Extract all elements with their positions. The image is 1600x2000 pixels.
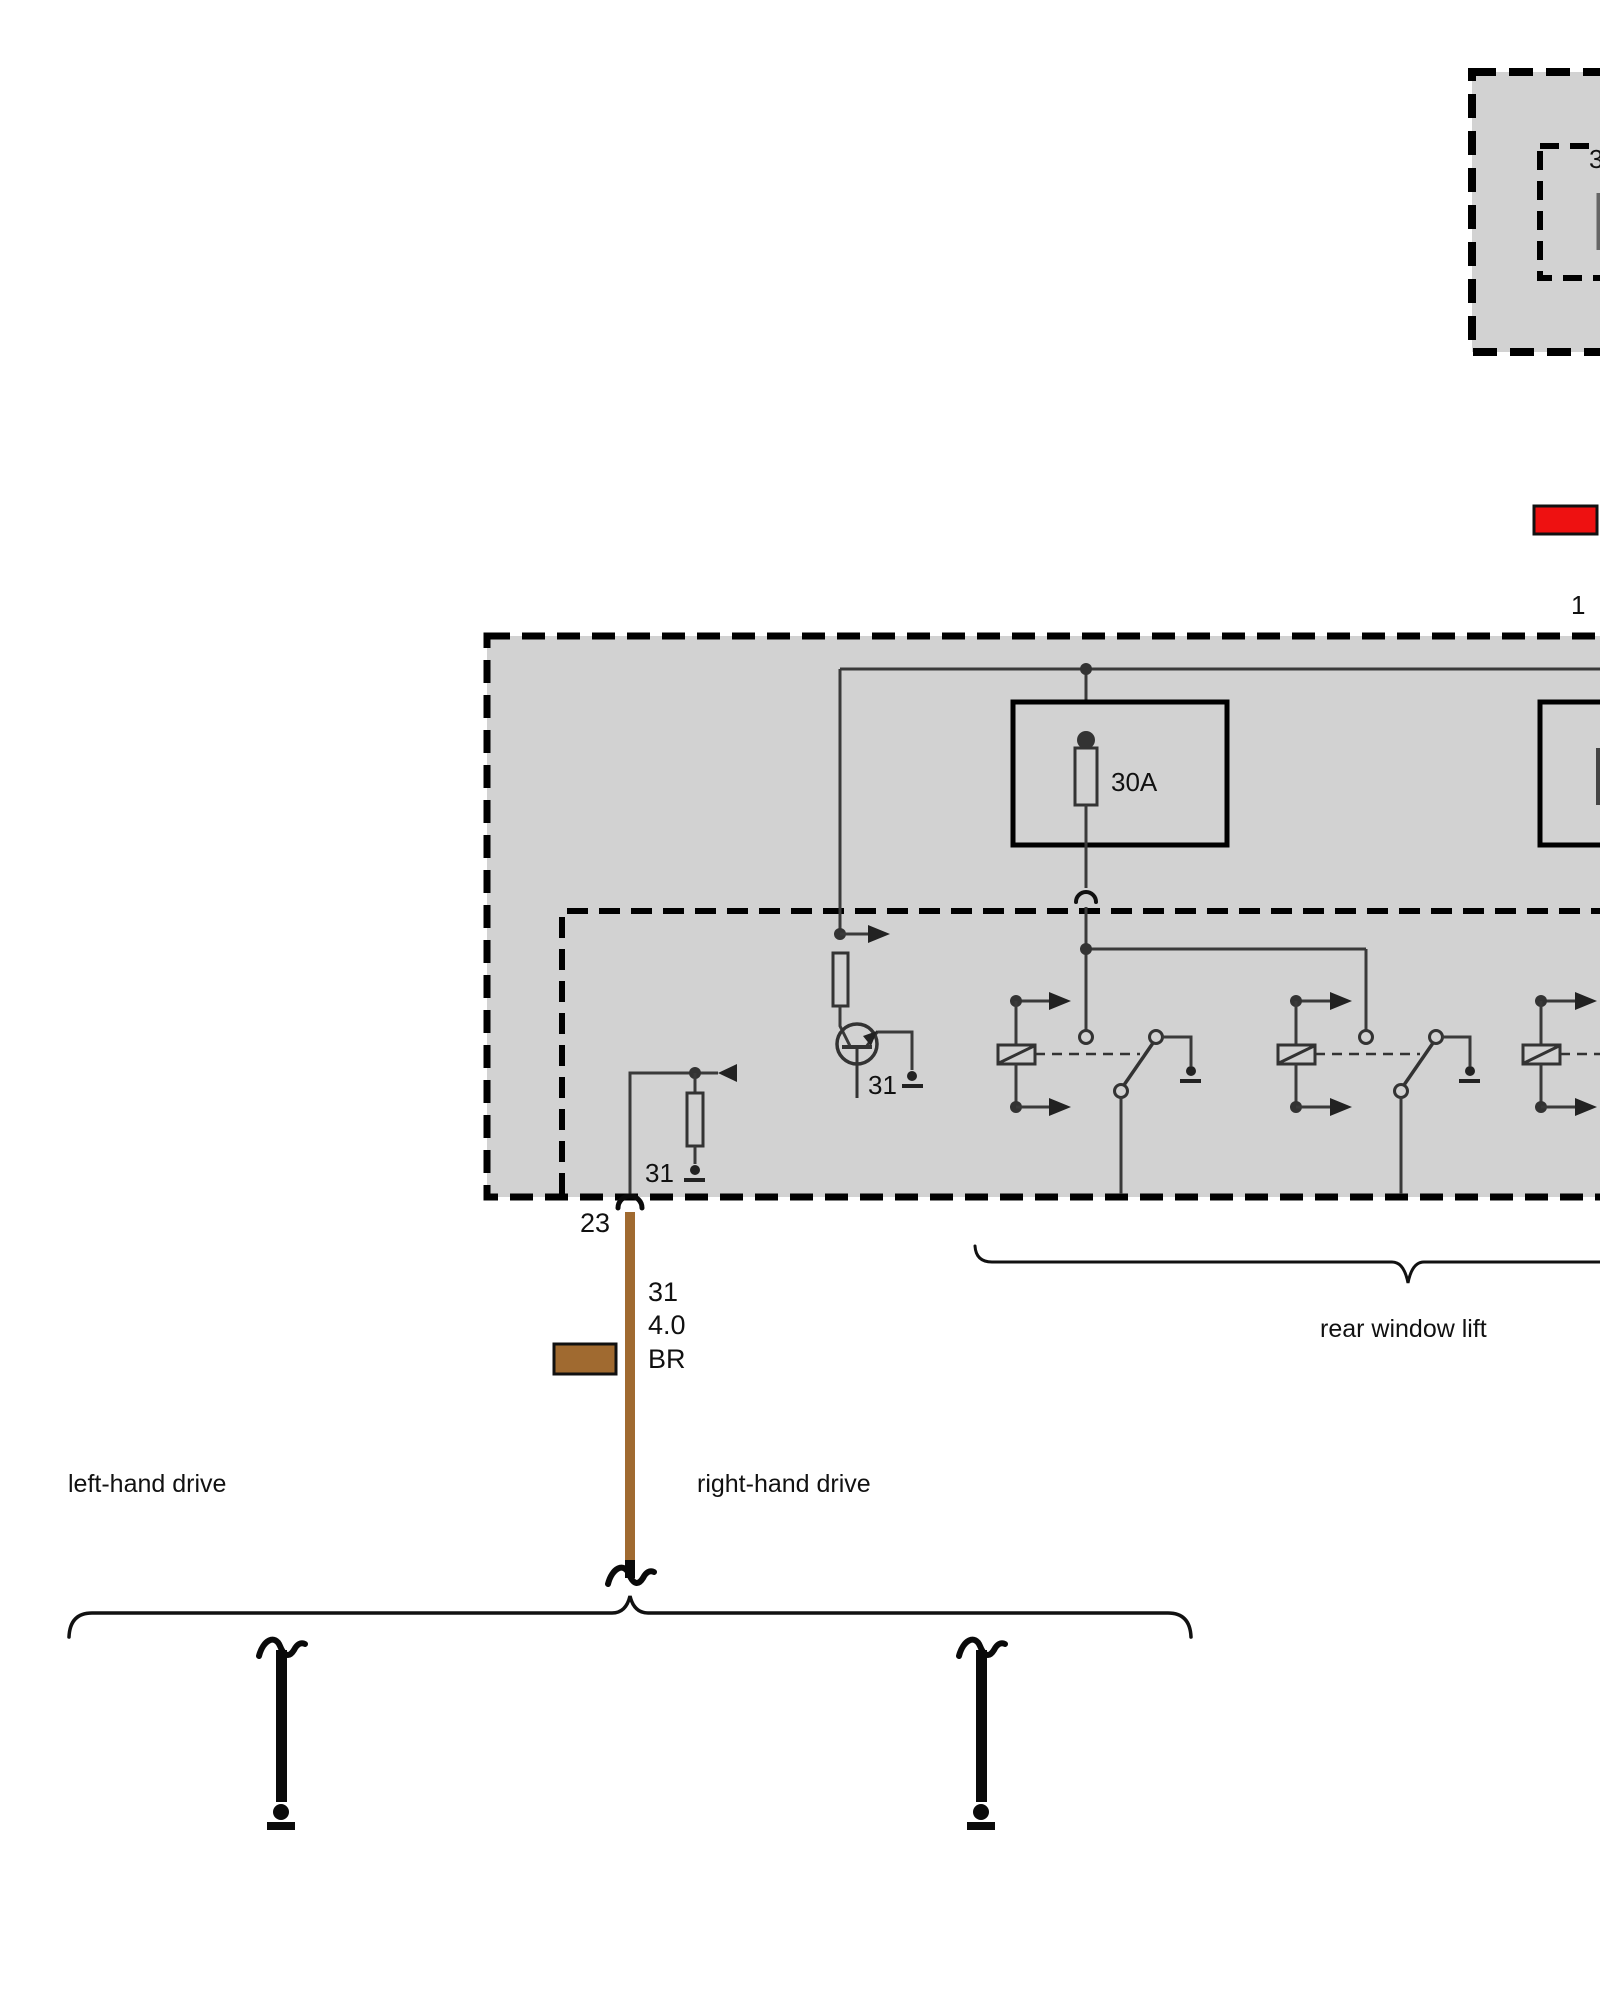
caption-right-hand-drive: right-hand drive (697, 1470, 871, 1498)
brace-bottom (69, 1596, 1191, 1637)
resistor-icon (687, 1093, 703, 1146)
ground-wire (976, 1650, 987, 1802)
ground-wire-right (959, 1640, 1005, 1830)
ground-icon (967, 1804, 995, 1830)
pin-23-label: 23 (580, 1208, 610, 1238)
ground-icon (267, 1804, 295, 1830)
ground-wire-left (259, 1640, 305, 1830)
red-wire-stub (1534, 506, 1597, 534)
brown-wire (625, 1212, 635, 1560)
ground-wire (276, 1650, 287, 1802)
wiring-diagram-page: 3 1 30A (0, 0, 1600, 2000)
rear-window-lift-group: rear window lift (975, 1246, 1600, 1343)
fuse-rating-label: 30A (1111, 767, 1158, 797)
ground-31-label: 31 (645, 1158, 674, 1188)
fuse-icon (1075, 748, 1097, 805)
supply-wire-stub: 1 (1534, 506, 1597, 620)
fuse-box-2-border (1540, 702, 1600, 845)
pin-23-connector-icon (618, 1196, 642, 1208)
caption-rear-window-lift: rear window lift (1320, 1315, 1487, 1343)
junction-dot (1080, 663, 1092, 675)
resistor-icon (833, 953, 848, 1006)
caption-left-hand-drive: left-hand drive (68, 1470, 226, 1498)
brown-wire-assembly: 31 4.0 BR (554, 1212, 686, 1584)
control-unit-top-box: 3 (1472, 72, 1600, 352)
ground-31-label: 31 (868, 1070, 897, 1100)
wire-gauge-label: 4.0 (648, 1310, 686, 1340)
wiring-diagram: 3 1 30A (0, 0, 1600, 2000)
wire-terminal-label: 31 (648, 1277, 678, 1307)
fuse-terminal-dot (1077, 731, 1095, 749)
pin-3-label: 3 (1589, 144, 1600, 174)
pin-1-label: 1 (1571, 590, 1585, 620)
junction-dot (1080, 943, 1092, 955)
inline-connector (554, 1344, 616, 1374)
brace-rear-window-lift (975, 1246, 1600, 1283)
wire-color-label: BR (648, 1344, 686, 1374)
fuse-box-2 (1540, 702, 1600, 845)
